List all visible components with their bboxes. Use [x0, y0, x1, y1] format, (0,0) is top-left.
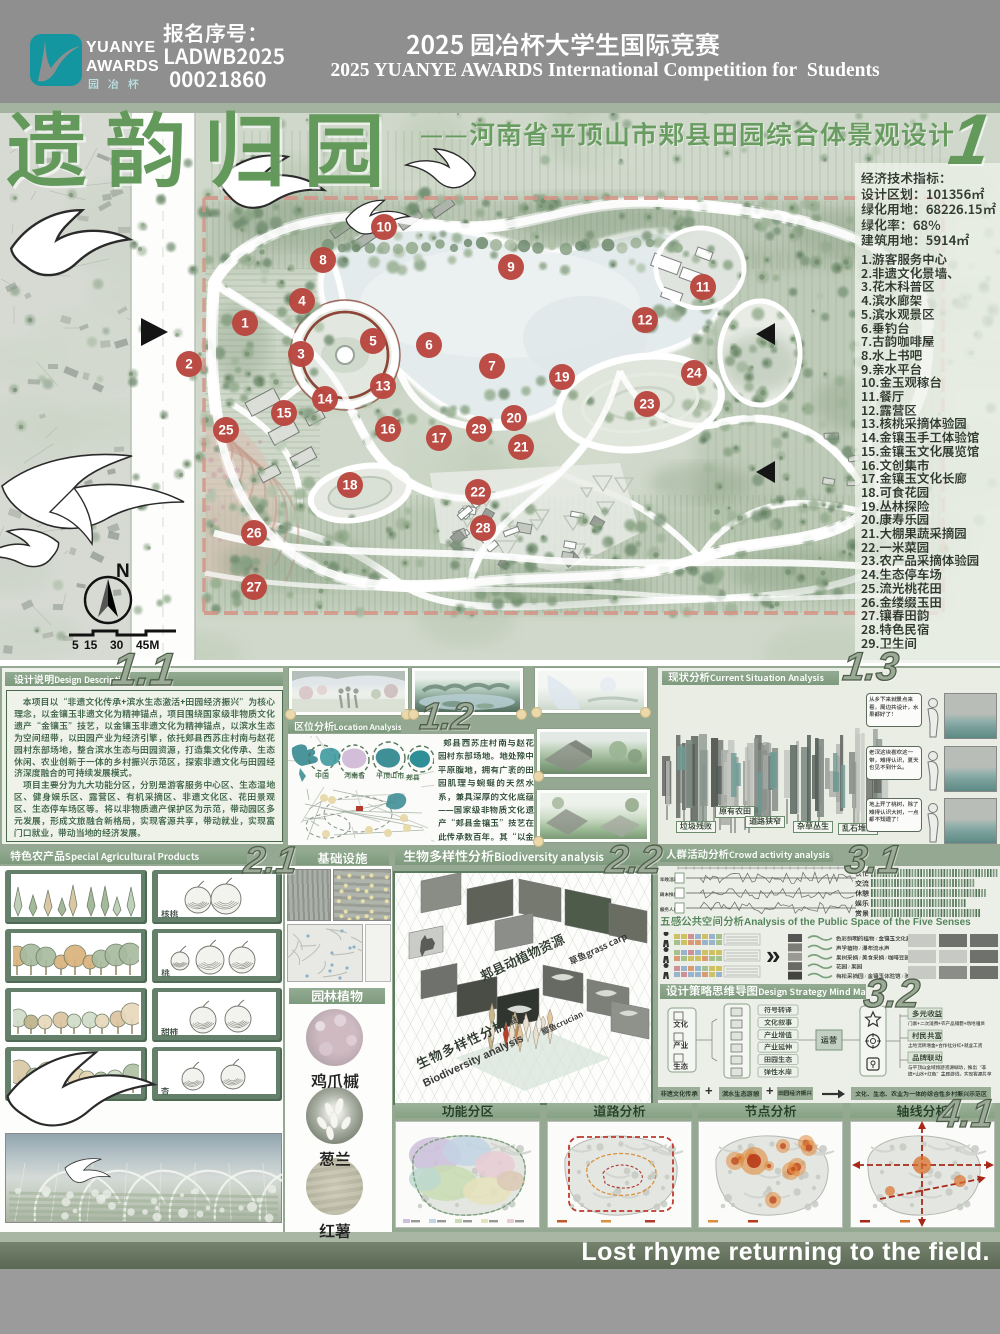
svg-text:平顶山市: 平顶山市 [376, 771, 404, 781]
svg-text:27: 27 [246, 580, 261, 595]
svg-text:甜柿: 甜柿 [161, 1026, 179, 1038]
svg-text:17: 17 [431, 431, 446, 446]
svg-text:文化叙事: 文化叙事 [764, 1018, 792, 1028]
svg-text:22: 22 [470, 485, 485, 500]
svg-text:生态: 生态 [673, 1061, 688, 1072]
svg-text:河南省: 河南省 [344, 771, 366, 781]
svg-text:25: 25 [218, 423, 234, 438]
svg-text:1: 1 [241, 316, 249, 331]
svg-text:3: 3 [297, 347, 305, 362]
svg-text:郏县: 郏县 [406, 773, 420, 783]
svg-text:13: 13 [375, 379, 391, 394]
svg-text:与平顶山全域旅游资源联动，推出“非: 与平顶山全域旅游资源联动，推出“非 [908, 1064, 987, 1071]
svg-text:15: 15 [276, 406, 292, 421]
svg-text:6: 6 [425, 338, 433, 353]
svg-text:12: 12 [637, 313, 652, 328]
svg-text:24: 24 [686, 366, 702, 381]
svg-text:23: 23 [639, 397, 655, 412]
svg-text:»: » [766, 940, 780, 970]
svg-text:门票+二次消费+农产品销售+场地租赁: 门票+二次消费+农产品销售+场地租赁 [908, 1020, 985, 1027]
svg-text:符号转译: 符号转译 [764, 1006, 792, 1016]
svg-text:花园 / 果园: 花园 / 果园 [836, 963, 863, 971]
svg-text:26: 26 [246, 526, 262, 541]
svg-text:7: 7 [488, 359, 496, 374]
svg-text:20: 20 [506, 411, 521, 426]
svg-text:中国: 中国 [315, 771, 330, 781]
svg-text:运营: 运营 [821, 1035, 837, 1046]
svg-text:娱乐: 娱乐 [855, 899, 869, 909]
svg-text:19: 19 [554, 370, 569, 385]
svg-text:产业延伸: 产业延伸 [764, 1043, 793, 1053]
svg-text:土地流转增金+合作社分红+就业工资: 土地流转增金+合作社分红+就业工资 [908, 1042, 983, 1049]
svg-text:弹性水岸: 弹性水岸 [764, 1068, 792, 1078]
svg-text:18: 18 [342, 478, 358, 493]
svg-text:遗+山水+红色”主题游线，实现客源共享: 遗+山水+红色”主题游线，实现客源共享 [907, 1071, 992, 1078]
svg-text:声学植物 / 瀑布流水声: 声学植物 / 瀑布流水声 [836, 944, 890, 952]
svg-text:14: 14 [317, 392, 333, 407]
svg-text:2: 2 [185, 357, 193, 372]
svg-text:8: 8 [319, 253, 327, 268]
svg-text:村民共富: 村民共富 [911, 1031, 942, 1042]
svg-text:产业: 产业 [673, 1040, 688, 1051]
svg-text:29: 29 [471, 422, 486, 437]
svg-text:产业增值: 产业增值 [764, 1030, 793, 1040]
svg-text:28: 28 [475, 521, 491, 536]
svg-text:5: 5 [369, 334, 377, 349]
svg-text:文化: 文化 [673, 1019, 688, 1030]
svg-text:桃: 桃 [161, 967, 170, 979]
svg-text:田园生态: 田园生态 [764, 1055, 793, 1065]
svg-text:9: 9 [507, 260, 515, 275]
svg-text:休憩: 休憩 [855, 889, 869, 899]
svg-text:4: 4 [298, 294, 306, 309]
svg-text:品牌联动: 品牌联动 [912, 1053, 942, 1064]
svg-text:21: 21 [513, 440, 529, 455]
svg-text:10: 10 [376, 220, 391, 235]
svg-text:11: 11 [696, 280, 711, 295]
svg-text:核桃: 核桃 [160, 908, 179, 920]
svg-text:16: 16 [380, 422, 396, 437]
